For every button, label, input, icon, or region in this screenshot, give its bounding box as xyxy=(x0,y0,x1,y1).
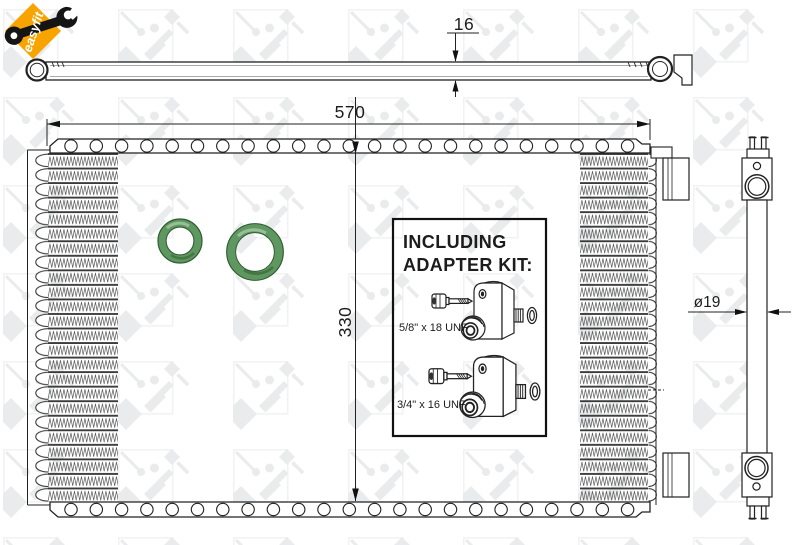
side-bottom-pin-left xyxy=(750,506,755,519)
right-top-tab xyxy=(651,147,672,158)
side-top-pin-left xyxy=(750,137,755,150)
side-pipe-body xyxy=(747,200,767,453)
side-top-pin-right xyxy=(762,137,767,150)
top-view-right-port xyxy=(648,57,672,81)
condenser-technical-drawing: INCLUDING ADAPTER KIT: 5/8" x 18 UNF 3/4… xyxy=(0,0,800,545)
right-fin-core xyxy=(580,153,648,502)
adapter-label-5-8: 5/8" x 18 UNF xyxy=(399,322,468,334)
drawing-canvas: INCLUDING ADAPTER KIT: 5/8" x 18 UNF 3/4… xyxy=(0,0,800,545)
dimension-570-label: 570 xyxy=(335,102,366,122)
right-top-bracket xyxy=(663,158,689,200)
side-bottom-pin-right xyxy=(762,506,767,519)
dimension-330-label: 330 xyxy=(335,307,355,338)
dimension-16-label: 16 xyxy=(454,14,474,34)
adapter-kit-title-line2: ADAPTER KIT: xyxy=(403,255,533,275)
top-bolt-holes xyxy=(65,140,634,152)
adapter-label-3-4: 3/4" x 16 UNF xyxy=(397,399,466,411)
right-bottom-bracket xyxy=(663,453,689,497)
right-tube-bends xyxy=(648,153,659,502)
top-view-left-port xyxy=(27,60,48,81)
bottom-bolt-holes xyxy=(65,503,634,515)
dimension-diameter-19-label: ø19 xyxy=(694,294,721,311)
left-fin-core xyxy=(48,153,118,502)
side-view-drawing xyxy=(742,137,772,519)
adapter-kit-title-line1: INCLUDING xyxy=(403,232,507,252)
left-tube-bends xyxy=(27,153,49,502)
